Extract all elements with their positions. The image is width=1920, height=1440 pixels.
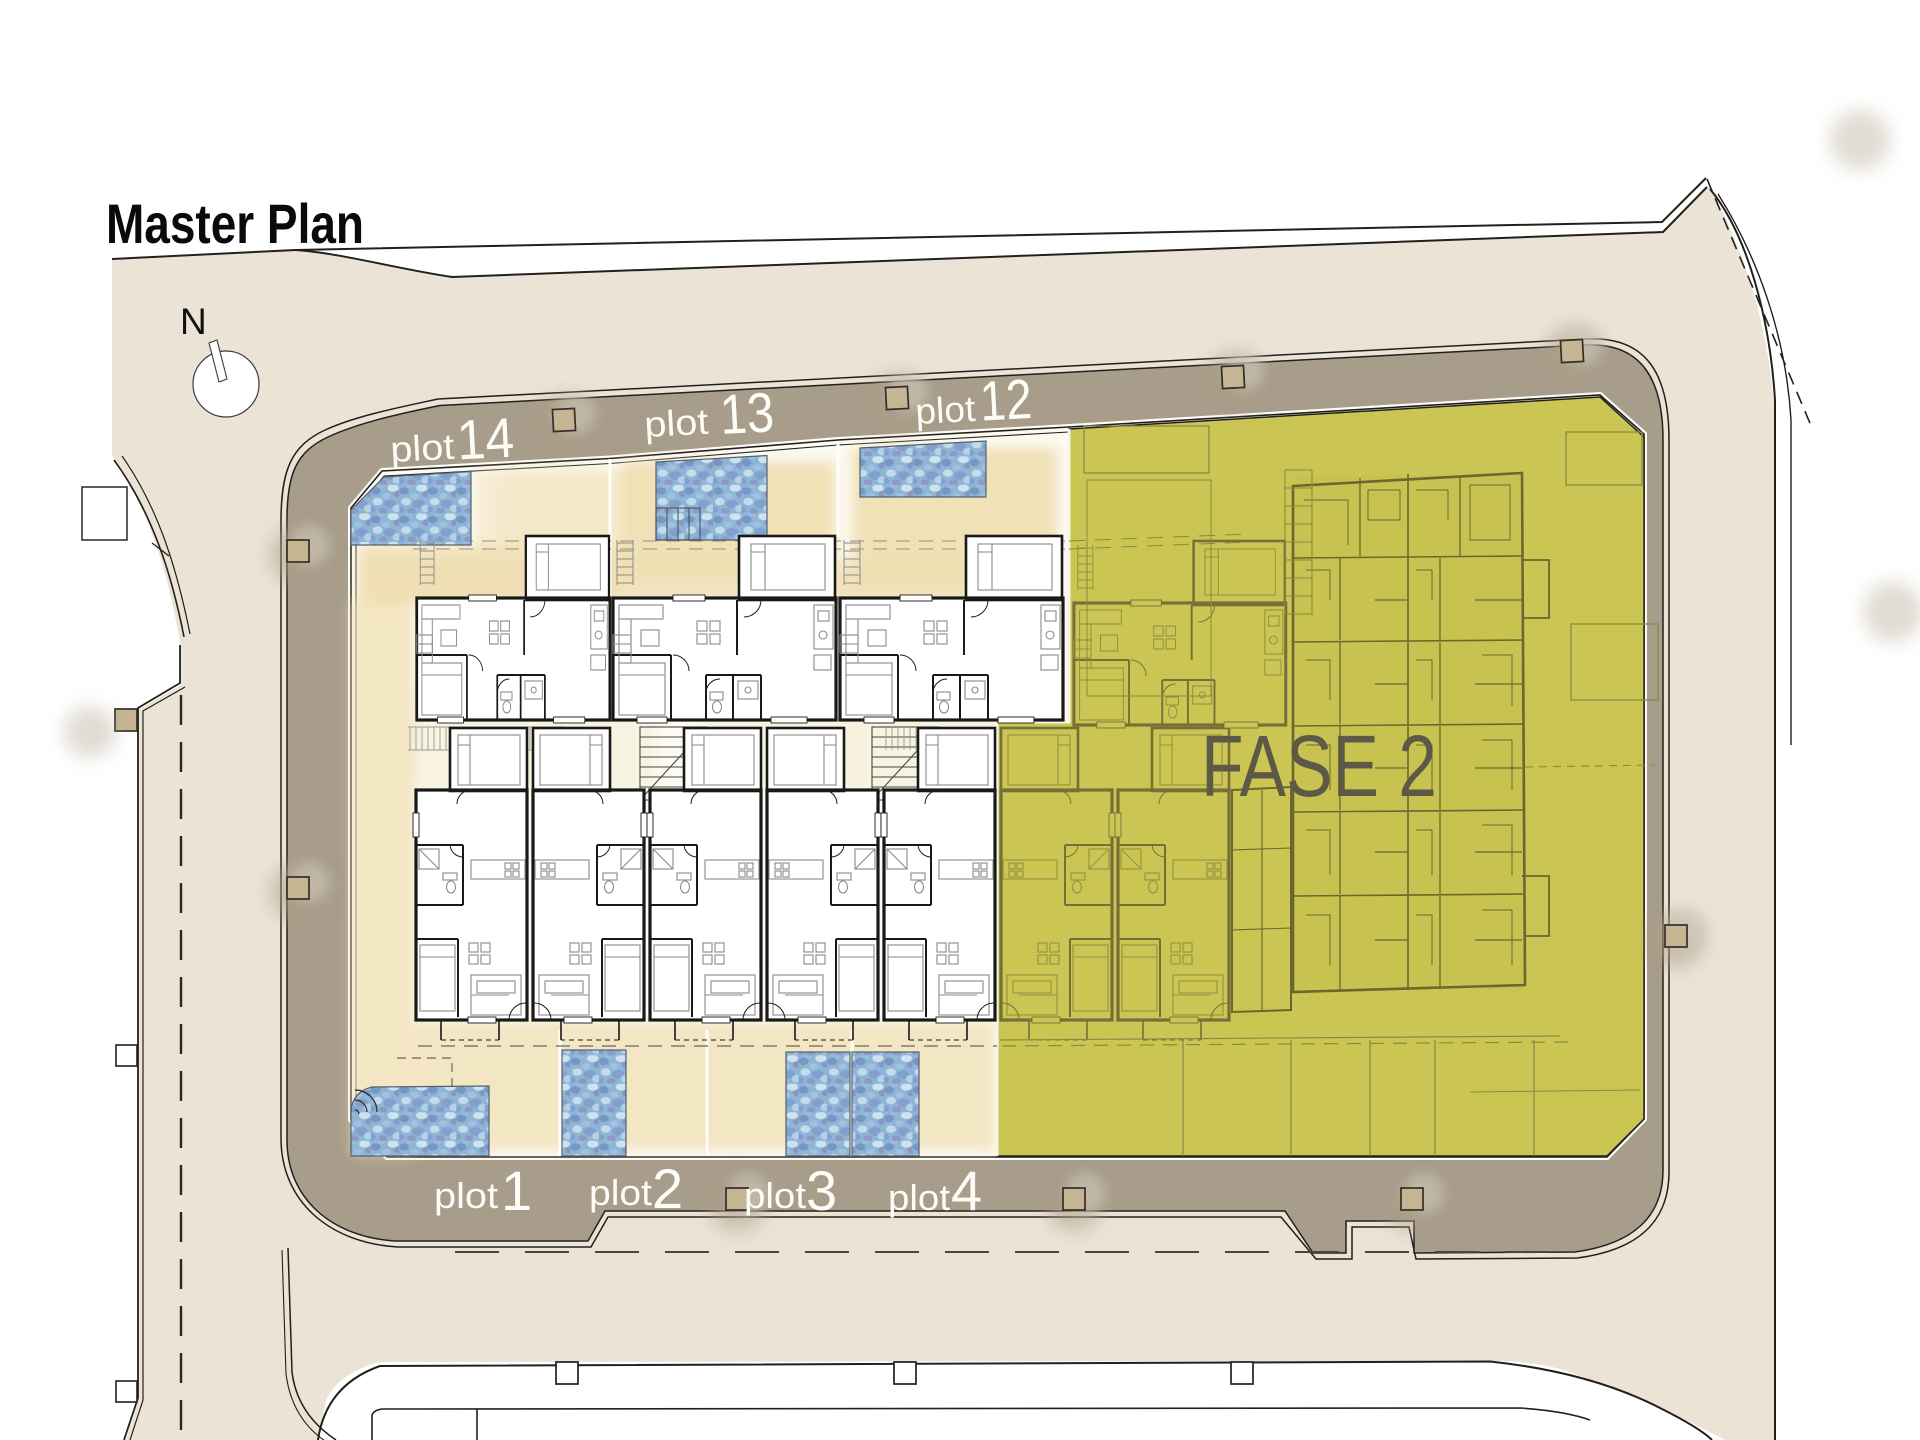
svg-text:4: 4 xyxy=(951,1159,982,1222)
svg-text:plot: plot xyxy=(914,388,976,432)
svg-text:3: 3 xyxy=(806,1159,837,1222)
svg-text:12: 12 xyxy=(978,367,1033,433)
svg-text:13: 13 xyxy=(718,380,775,446)
svg-text:plot: plot xyxy=(434,1175,498,1216)
svg-text:plot: plot xyxy=(643,401,709,445)
svg-text:plot: plot xyxy=(589,1172,652,1213)
svg-text:1: 1 xyxy=(501,1159,532,1222)
svg-text:N: N xyxy=(180,301,207,342)
svg-text:FASE 2: FASE 2 xyxy=(1201,718,1437,815)
svg-text:Master Plan: Master Plan xyxy=(106,192,364,255)
svg-text:2: 2 xyxy=(652,1157,683,1220)
svg-text:plot: plot xyxy=(744,1175,806,1216)
svg-text:plot: plot xyxy=(389,426,455,470)
svg-text:14: 14 xyxy=(455,406,515,472)
svg-text:plot: plot xyxy=(888,1177,950,1218)
